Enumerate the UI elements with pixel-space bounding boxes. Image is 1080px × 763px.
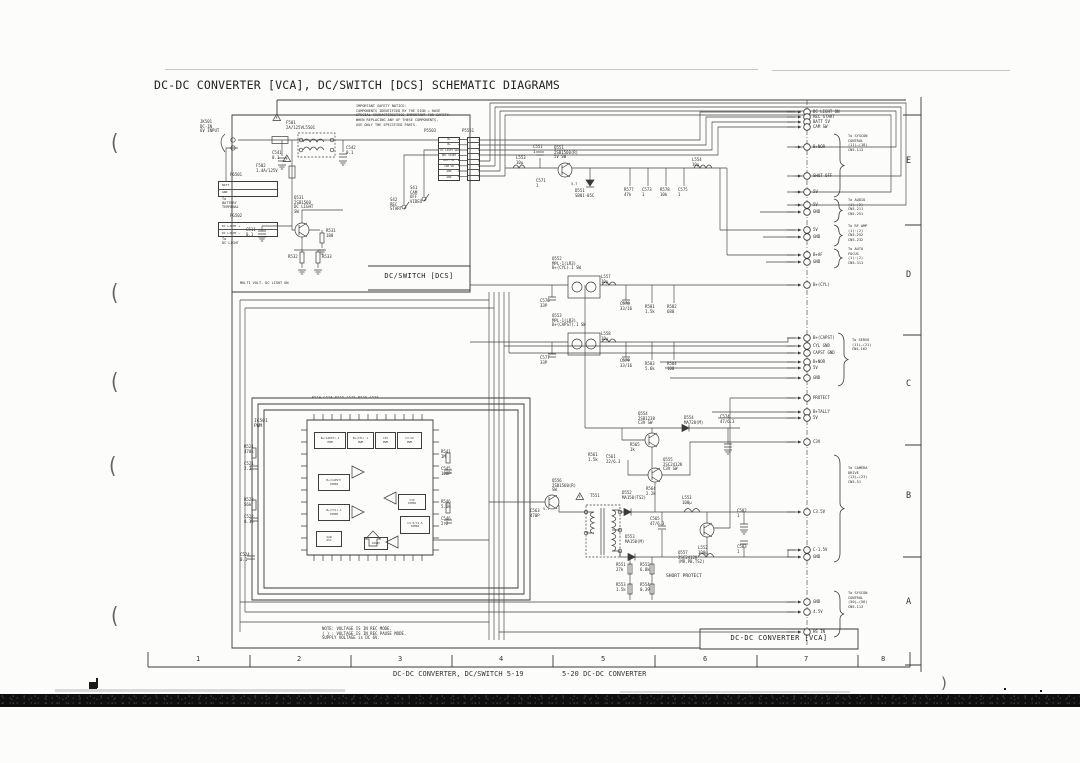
connector-name-p5503: P5503 [424, 129, 436, 134]
part-label: C576 33P [540, 299, 550, 308]
part-label: R522 56k [244, 498, 254, 507]
dest-annotation: To SYSCON CONTROL (50)—(56) CN5-113 [848, 591, 867, 610]
part-label: F502 1.4A/125V [256, 164, 278, 173]
pin-label: C3V [813, 440, 820, 444]
part-label: R546 5.6k [441, 500, 451, 509]
ruler-row: D [906, 270, 911, 280]
ic-block: B+(CAPST) COMPA [318, 474, 350, 491]
connector-name-p5551: P5551 [462, 129, 474, 134]
part-label: Q551 2SB1560(R) 5V SW [554, 146, 578, 160]
pin-label: B+NOR [813, 360, 825, 364]
part-label: Q552 MPL-1(LR3) B+(CYL).1 SW [552, 257, 581, 271]
part-label: L558 10μ [601, 332, 611, 341]
part-label: D554 MA728(M) [684, 416, 703, 425]
part-label: R521 470k [244, 445, 254, 454]
ruler-col: 8 [881, 655, 885, 663]
pin-label: CYL GND [813, 344, 830, 348]
connector-p5551-box [467, 137, 480, 181]
ic-block: C3V COMPA [398, 494, 426, 510]
scanned-schematic-page: ( ( ( ( ( ) DC-DC CONVERTER [VCA], DC/SW… [0, 0, 1080, 763]
ruler-row: A [906, 597, 911, 607]
dest-annotation: To AUTO FOCUS (1)·(2) CN5-311 [848, 247, 863, 266]
wires [226, 103, 906, 640]
part-label: T551 [590, 494, 600, 499]
part-label: C511 0.1 [246, 228, 256, 237]
part-label: C583 1 [737, 545, 747, 554]
pin-label: B+(CAPST) [813, 336, 835, 340]
ruler-col: 7 [804, 655, 808, 663]
ic-top-parts-row: R534 C534 R535 C535 R536 C536 [312, 396, 379, 400]
part-label: R583 5.6k [645, 362, 655, 371]
pin-label: GND [813, 260, 820, 264]
pin-label: B+NOR [813, 145, 825, 149]
part-label: C565 47/6.3 [650, 517, 664, 526]
pin-label: GND [813, 210, 820, 214]
part-label: C573 1 [642, 188, 652, 197]
part-label: R582 680 [667, 305, 677, 314]
transistor-q557 [700, 523, 714, 537]
part-label: C575 1 [678, 188, 688, 197]
part-label: D553 MA150(M) [625, 535, 644, 544]
ic-block: C3V PWM [375, 432, 396, 449]
part-label: L551 100μ [682, 496, 692, 505]
part-label: C524 0.1 [240, 553, 250, 562]
dest-annotation: To CAMERA DRIVE (13)—(23) CN5-51 [848, 466, 867, 485]
voltage-mark: 5.7 [543, 507, 549, 511]
ruler-col: 5 [601, 655, 605, 663]
part-label: C571 1 [536, 179, 546, 188]
part-label: L557 10μ [601, 275, 611, 284]
part-label: C574 47/6.3 [720, 415, 734, 424]
part-label: L553 10μ [516, 156, 526, 165]
ruler-row: E [906, 156, 911, 166]
pin-arrows [787, 112, 801, 632]
ruler-col: 3 [398, 655, 402, 663]
pin-label: 5V [813, 366, 818, 370]
ic501-label: IC501 PWM [254, 419, 268, 430]
connector-p5503-box: B+ B+ DC LIGHT SW REC START BATT 5V CAM … [438, 137, 460, 181]
part-label: Q557 2SC2412K (MR,PB,TS2) [678, 551, 705, 565]
voltage-mark: 5.7 [571, 182, 577, 186]
part-label: C542 0.1 [346, 146, 356, 155]
pin-label: HS IN [813, 630, 825, 634]
part-label: R554 0.39 [640, 583, 650, 592]
part-label: R533 [322, 255, 332, 260]
connector-row: BATT [219, 182, 277, 190]
pin-label: C3.5V [813, 510, 825, 514]
part-label: C582 1 [737, 509, 747, 518]
pin-label: B+TALLY [813, 410, 830, 414]
destination-braces [834, 134, 848, 637]
pin-label: CAM SW [813, 125, 827, 129]
ic-block: C3.5/C1.5 COMPA [400, 516, 430, 534]
dest-dc-light: To DC LIGHT [222, 237, 239, 245]
pin-label: GND [813, 235, 820, 239]
part-label: C521 2.2 [244, 462, 254, 471]
ic-block: B+(CYL).1 PWM [347, 432, 374, 449]
ruler-col: 1 [196, 655, 200, 663]
ic-block: LOGIC [364, 537, 388, 550]
multi-volt-note: MULTI VOLT. DC LIGHT ON [240, 281, 288, 285]
part-label: R561 1.5k [588, 453, 598, 462]
pin-label: SHUT OFF [813, 174, 832, 178]
transformer-t551 [584, 505, 622, 557]
part-label: D552 MA150(TS2) [622, 491, 646, 500]
part-label: R578 10k [660, 188, 670, 197]
footer-caption-right: 5-20 DC-DC CONVERTER [562, 670, 646, 678]
vca-section-label: DC-DC CONVERTER [VCA] [700, 634, 858, 642]
switch-s41-label: S41 CAM OFF VIDEO [410, 186, 422, 205]
part-label: D551 SB01-05C [575, 189, 594, 198]
part-label: Q556 2SB1560(R) SW [552, 479, 576, 493]
part-label: C522 0.15 [244, 515, 254, 524]
part-label: L5501 [303, 126, 315, 131]
part-label: R532 [288, 255, 298, 260]
connector-p6501-box: BATT GND [218, 181, 278, 197]
part-label: C546 2.2 [441, 517, 451, 526]
ruler-col: 4 [499, 655, 503, 663]
voltage-note: NOTE: VOLTAGE IS IN REC MODE. ( ) : VOLT… [322, 627, 406, 641]
part-label: F501 2A/125V [286, 121, 303, 130]
switch-s42-label: S42 REC START [390, 198, 402, 212]
schematic-linework [0, 0, 1080, 763]
ic-block: B+(CYL).1 COMPA [318, 504, 350, 521]
dest-annotation: To RF AMP (1)·(2) CN5-252 CN5-232 [848, 224, 867, 243]
transistor-q531 [295, 223, 309, 237]
part-label: R551 27k [616, 563, 626, 572]
component-glyphs [221, 114, 748, 594]
part-label: R553 1.5k [616, 583, 626, 592]
part-label: R564 2.2k [646, 487, 656, 496]
part-label: R577 47k [624, 188, 634, 197]
part-label: C541 0.1 [272, 151, 282, 160]
dest-annotation: To SERVO (11)—(21) CN5-162 [852, 338, 871, 352]
pin-label: B+AF [813, 253, 823, 257]
ic-block: SAW OSC [316, 531, 342, 547]
dest-annotation: To SYSCON CONTROL (11)—(18) CN5-113 [848, 134, 867, 153]
pin-label: 4.5V [813, 610, 823, 614]
dest-annotation: To AUDIO (1)·(2) CN5-211 CN5-251 [848, 198, 865, 217]
part-label: R565 1k [630, 443, 640, 452]
part-label: Q531 2SB1560 DC LIGHT SW [294, 196, 313, 215]
ruler-col: 2 [297, 655, 301, 663]
dcs-section-label: DC/SWITCH [DCS] [368, 272, 470, 280]
part-label: L554 10μ [692, 158, 702, 167]
connector-row [468, 176, 479, 180]
pin-label: 5V [813, 203, 818, 207]
part-label: C579 33/16 [620, 359, 632, 368]
ruler-row: C [906, 379, 911, 389]
pin-label: GND [813, 555, 820, 559]
part-label: C563 470P [530, 509, 540, 518]
part-label: C561 22/6.3 [606, 455, 620, 464]
pin-label: 5V [813, 228, 818, 232]
part-label: Q554 2SB1238 C3V SW [638, 412, 655, 426]
pin-label: 5V [813, 416, 818, 420]
pin-label: 5V [813, 190, 818, 194]
footer-caption-left: DC-DC CONVERTER, DC/SWITCH 5-19 [393, 670, 524, 678]
pin-label: GND [813, 600, 820, 604]
part-label: Q553 MPL-1(LR3) B+(CAPST).1 SW [552, 314, 586, 328]
part-label: C577 33P [540, 356, 550, 365]
connector-row: GND [219, 190, 277, 197]
ic-block: B+(CAPST).1 PWM [314, 432, 346, 449]
pin-label: PROTECT [813, 396, 830, 400]
pin-label: GND [813, 376, 820, 380]
safety-notice: IMPORTANT SAFETY NOTICE: COMPONENTS IDEN… [356, 104, 486, 128]
part-label: Q555 2SC2412K C3V SW [663, 458, 682, 472]
ruler-row: B [906, 491, 911, 501]
pin-label: B+(CYL) [813, 283, 830, 287]
frame-lines [232, 100, 906, 649]
part-label: R584 100 [667, 362, 677, 371]
transistor-q554 [645, 433, 659, 447]
short-protect-label: SHORT PROTECT [666, 574, 702, 579]
connector-name-pg502: PG502 [230, 214, 242, 219]
part-label: C551 1 [533, 145, 543, 154]
connector-name-p6501: P6501 [230, 173, 242, 178]
part-label: C545 100P [441, 467, 451, 476]
part-label: C578 33/16 [620, 302, 632, 311]
part-label: R581 1.5k [645, 305, 655, 314]
connector-row: GND [439, 176, 459, 180]
transistor-q555 [648, 468, 662, 482]
part-label: R552 6.8k [640, 563, 650, 572]
ic-block: C3.5V PWM [397, 432, 422, 449]
part-label: R541 1M [441, 450, 451, 459]
ruler-col: 6 [703, 655, 707, 663]
pin-label: C-1.5V [813, 548, 827, 552]
pin-label: CAPST GND [813, 351, 835, 355]
transistor-q551 [558, 163, 572, 177]
part-label: R531 180 [326, 229, 336, 238]
part-label: JK501 DC-IN 6V INPUT [200, 120, 219, 134]
dest-battery-terminal: To BATTERY TERMINAL [222, 197, 239, 209]
